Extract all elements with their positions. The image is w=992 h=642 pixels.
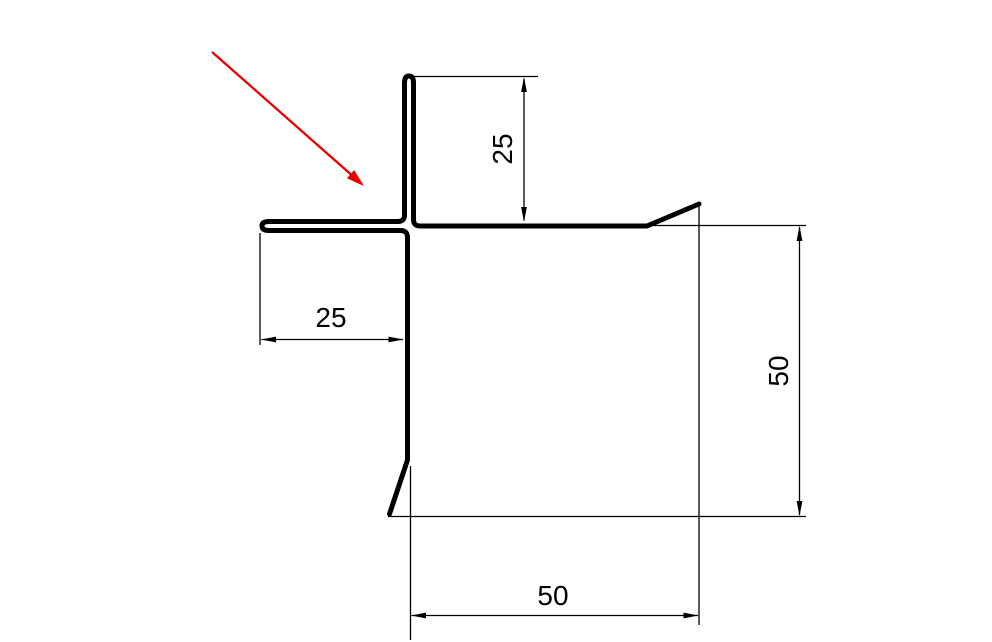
arrowhead-icon bbox=[684, 613, 699, 619]
arrowhead-icon bbox=[261, 337, 276, 343]
red-diagonal-arrow-icon bbox=[212, 52, 364, 186]
drawing-svg bbox=[0, 0, 992, 642]
extension-lines bbox=[260, 77, 806, 641]
arrowhead-icon bbox=[411, 613, 426, 619]
dim-label-top-25: 25 bbox=[488, 117, 518, 181]
arrowhead-icon bbox=[521, 207, 527, 222]
dimension-lines bbox=[262, 79, 800, 616]
dim-label-bottom-50: 50 bbox=[521, 581, 585, 611]
technical-drawing: 25 25 50 50 bbox=[0, 0, 992, 642]
dimension-arrowheads bbox=[261, 77, 802, 618]
dim-label-right-50: 50 bbox=[764, 339, 794, 403]
profile-outline bbox=[262, 76, 699, 514]
arrowhead-icon bbox=[797, 501, 803, 516]
arrowhead-icon bbox=[797, 226, 803, 241]
arrowhead-icon bbox=[521, 77, 527, 92]
dim-label-left-25: 25 bbox=[299, 303, 363, 333]
arrowhead-icon bbox=[389, 337, 404, 343]
